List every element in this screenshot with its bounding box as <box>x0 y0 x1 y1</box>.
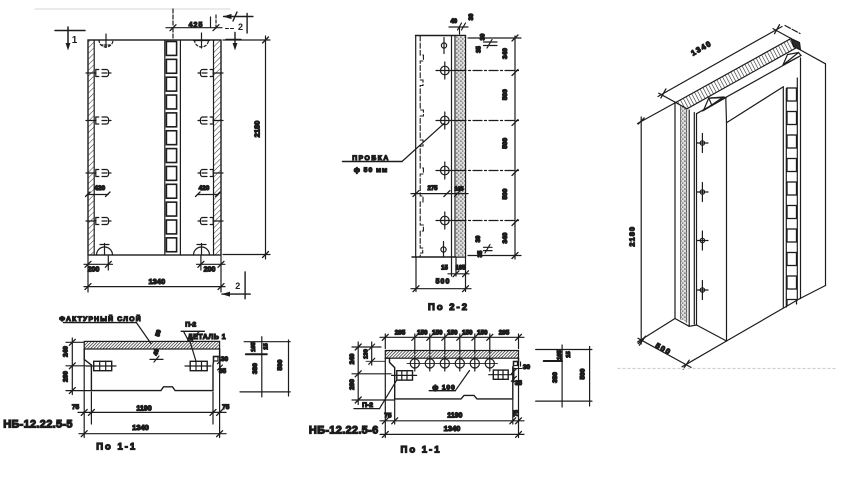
svg-text:260: 260 <box>349 379 356 390</box>
svg-text:30: 30 <box>469 13 475 20</box>
svg-text:260: 260 <box>63 371 70 382</box>
svg-text:295: 295 <box>499 330 510 337</box>
svg-text:ДЕТАЛЬ 1: ДЕТАЛЬ 1 <box>188 334 226 341</box>
svg-text:30: 30 <box>523 364 531 371</box>
svg-text:380: 380 <box>552 372 559 383</box>
svg-text:500: 500 <box>580 368 587 379</box>
svg-text:105: 105 <box>455 266 466 272</box>
svg-text:420: 420 <box>199 185 210 192</box>
svg-text:150: 150 <box>477 330 488 337</box>
svg-text:425: 425 <box>189 22 204 29</box>
svg-text:500: 500 <box>436 279 451 286</box>
svg-text:340: 340 <box>502 48 509 59</box>
svg-text:П-2: П-2 <box>185 321 196 328</box>
svg-text:1190: 1190 <box>447 413 462 420</box>
svg-text:150: 150 <box>432 330 443 337</box>
svg-text:2180: 2180 <box>253 121 262 138</box>
svg-text:35: 35 <box>477 46 483 53</box>
svg-text:1340: 1340 <box>444 424 461 433</box>
svg-text:500: 500 <box>277 359 284 370</box>
svg-text:500: 500 <box>502 188 509 199</box>
svg-text:15: 15 <box>441 266 448 272</box>
svg-text:2: 2 <box>238 22 243 32</box>
svg-text:105: 105 <box>557 349 563 359</box>
svg-text:По 1-1: По 1-1 <box>96 442 137 453</box>
svg-text:340: 340 <box>502 232 509 243</box>
svg-text:15: 15 <box>264 343 270 350</box>
svg-text:75: 75 <box>72 404 80 411</box>
svg-text:1340: 1340 <box>689 39 713 58</box>
svg-text:НБ-12.22.5-6: НБ-12.22.5-6 <box>309 425 379 437</box>
svg-text:15: 15 <box>566 351 572 358</box>
svg-text:200: 200 <box>204 267 216 274</box>
svg-text:1340: 1340 <box>148 277 165 286</box>
svg-text:500: 500 <box>502 89 509 100</box>
svg-text:30: 30 <box>481 33 487 40</box>
svg-text:275: 275 <box>427 186 438 192</box>
svg-text:По 2-2: По 2-2 <box>428 302 469 313</box>
svg-text:40: 40 <box>450 19 457 25</box>
svg-text:150: 150 <box>462 330 473 337</box>
svg-text:1190: 1190 <box>136 406 151 413</box>
svg-text:150: 150 <box>447 330 458 337</box>
svg-text:500: 500 <box>502 137 509 148</box>
svg-text:30: 30 <box>476 235 482 242</box>
svg-text:ФАКТУРНЫЙ СЛОЙ: ФАКТУРНЫЙ СЛОЙ <box>59 314 142 323</box>
svg-text:75: 75 <box>384 413 392 420</box>
svg-text:240: 240 <box>63 346 70 357</box>
svg-text:105: 105 <box>251 341 257 351</box>
svg-text:295: 295 <box>395 330 406 337</box>
svg-text:ф 50 мм: ф 50 мм <box>354 167 388 174</box>
svg-text:420: 420 <box>94 185 105 192</box>
svg-text:2180: 2180 <box>628 226 637 247</box>
svg-text:380: 380 <box>252 363 259 374</box>
svg-text:75: 75 <box>222 404 230 411</box>
svg-text:150: 150 <box>417 330 428 337</box>
svg-text:130: 130 <box>363 349 369 359</box>
svg-text:НБ-12.22.5-5: НБ-12.22.5-5 <box>3 419 73 431</box>
svg-text:1340: 1340 <box>132 423 149 432</box>
svg-text:1: 1 <box>72 35 78 46</box>
svg-text:35: 35 <box>478 250 484 257</box>
svg-text:500: 500 <box>654 341 673 357</box>
svg-text:2: 2 <box>235 281 240 291</box>
svg-text:50: 50 <box>155 329 163 338</box>
svg-text:По 1-1: По 1-1 <box>400 445 441 456</box>
svg-text:240: 240 <box>349 353 356 364</box>
svg-text:75: 75 <box>514 409 520 416</box>
svg-text:200: 200 <box>88 267 100 274</box>
